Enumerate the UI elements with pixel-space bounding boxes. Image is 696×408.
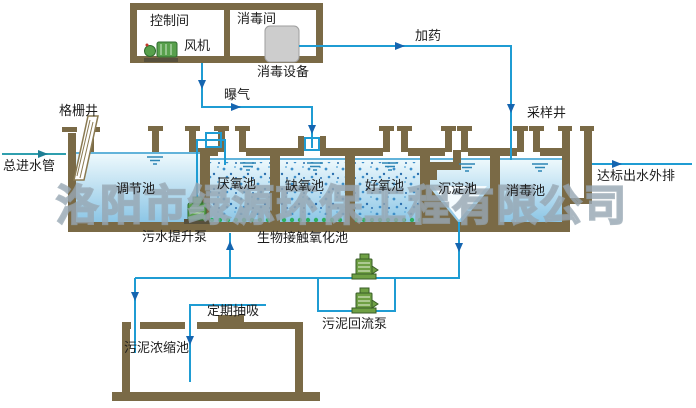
sludge-thickening-tank-label: 污泥浓缩池 <box>124 342 189 356</box>
disinfection-equipment-box <box>265 26 299 62</box>
grid-well-label: 格栅井 <box>59 105 98 119</box>
anoxic-tank-label: 缺氧池 <box>285 180 324 194</box>
disinfection-tank-label: 消毒池 <box>506 185 545 199</box>
aerobic-tank-label: 好氧池 <box>365 180 404 194</box>
aeration-label: 曝气 <box>224 89 250 103</box>
periodic-suction-label: 定期抽吸 <box>207 305 259 319</box>
regulation-tank-label: 调节池 <box>116 183 155 197</box>
control-room-label: 控制间 <box>150 15 189 29</box>
disinfection-equipment-label: 消毒设备 <box>257 66 309 80</box>
wastewater-treatment-diagram: 洛阳市绿源环保工程有限公司 控制间 风机 消毒间 消毒设备 加药 曝气 格栅井 … <box>0 0 696 408</box>
sewage-lift-pump-label: 污水提升泵 <box>142 231 207 245</box>
return-pump-1 <box>352 254 378 279</box>
sludge-thickening-tank <box>112 315 320 401</box>
outlet-label: 达标出水外排 <box>597 170 675 184</box>
fan-label: 风机 <box>184 40 210 54</box>
sampling-well-label: 采样井 <box>527 107 566 121</box>
sedimentation-tank-label: 沉淀池 <box>438 183 477 197</box>
sludge-return-pump-label: 污泥回流泵 <box>322 318 387 332</box>
bio-contact-tank-label: 生物接触氧化池 <box>257 232 348 246</box>
sludge-return-pump-icons <box>352 254 378 313</box>
disinfection-room-label: 消毒间 <box>237 13 276 27</box>
return-pump-2 <box>352 288 378 313</box>
dosing-label: 加药 <box>415 30 441 44</box>
anaerobic-tank-label: 厌氧池 <box>217 178 256 192</box>
inlet-pipe-label: 总进水管 <box>3 160 55 174</box>
